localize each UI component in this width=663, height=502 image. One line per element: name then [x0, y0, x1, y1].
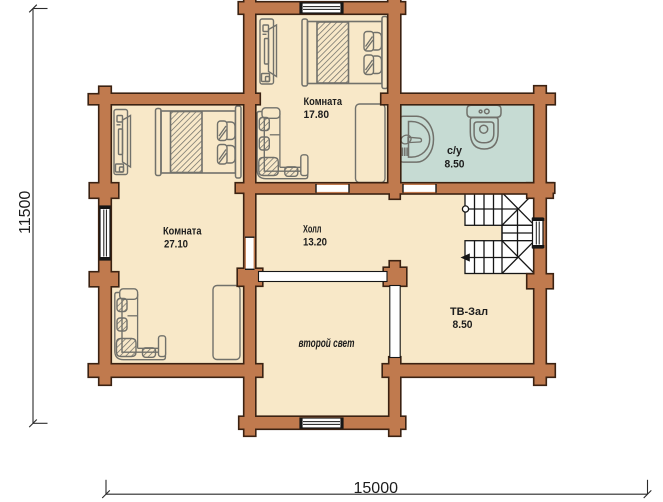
svg-text:27.10: 27.10 — [164, 239, 188, 251]
svg-text:13.20: 13.20 — [303, 237, 327, 249]
svg-text:8.50: 8.50 — [453, 319, 473, 331]
svg-text:17.80: 17.80 — [304, 109, 330, 121]
svg-text:15000: 15000 — [354, 480, 399, 497]
svg-text:второй свет: второй свет — [299, 338, 355, 350]
svg-text:ТВ-Зал: ТВ-Зал — [450, 306, 488, 318]
svg-text:Комната: Комната — [304, 96, 343, 108]
svg-text:Холл: Холл — [303, 224, 322, 236]
svg-text:11500: 11500 — [17, 191, 34, 234]
svg-text:с/у: с/у — [447, 145, 463, 157]
svg-text:8.50: 8.50 — [445, 159, 465, 171]
svg-text:Комната: Комната — [163, 226, 202, 238]
